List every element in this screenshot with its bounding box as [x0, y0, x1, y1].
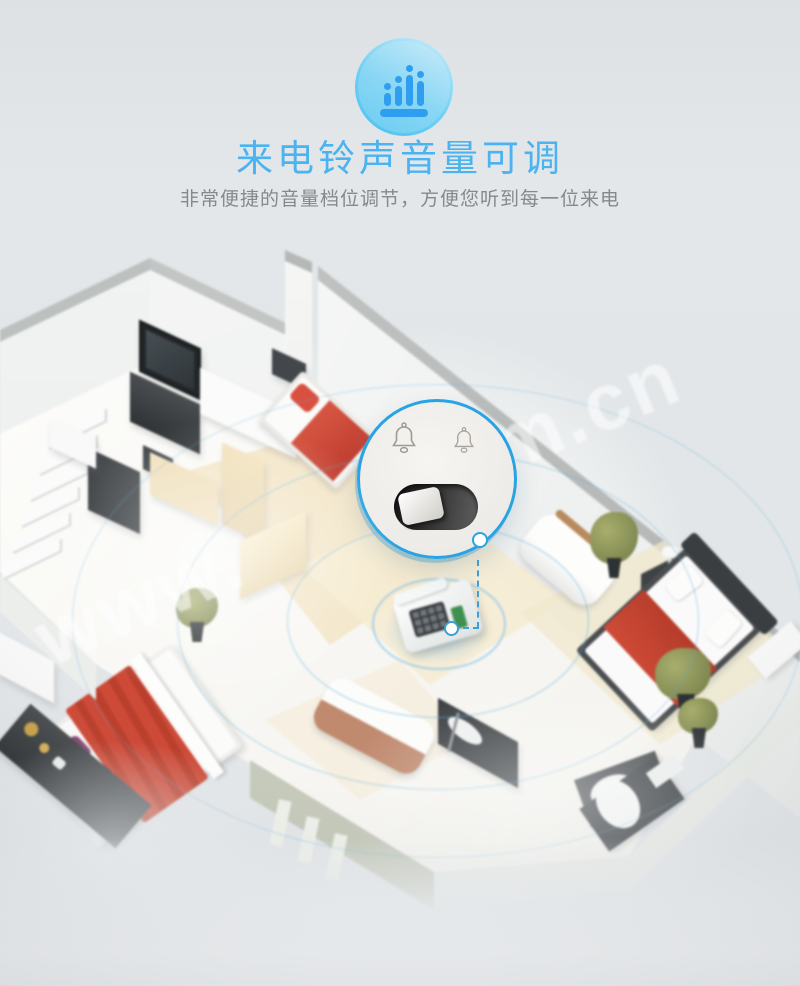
decor-plate [37, 741, 51, 755]
callout-anchor-dot [472, 532, 488, 548]
bottom-fade [0, 838, 800, 986]
connector-line-vertical [477, 560, 479, 628]
slider-knob [397, 486, 445, 526]
bell-icon [454, 426, 474, 456]
bell-icon [392, 422, 416, 456]
decor-plate [21, 719, 41, 739]
product-feature-page: 来电铃声音量可调 非常便捷的音量档位调节，方便您听到每一位来电 [0, 0, 800, 986]
volume-slider [394, 484, 478, 530]
decor-cup [51, 755, 67, 770]
magnifier-callout [357, 399, 517, 559]
connector-dot [444, 621, 459, 636]
